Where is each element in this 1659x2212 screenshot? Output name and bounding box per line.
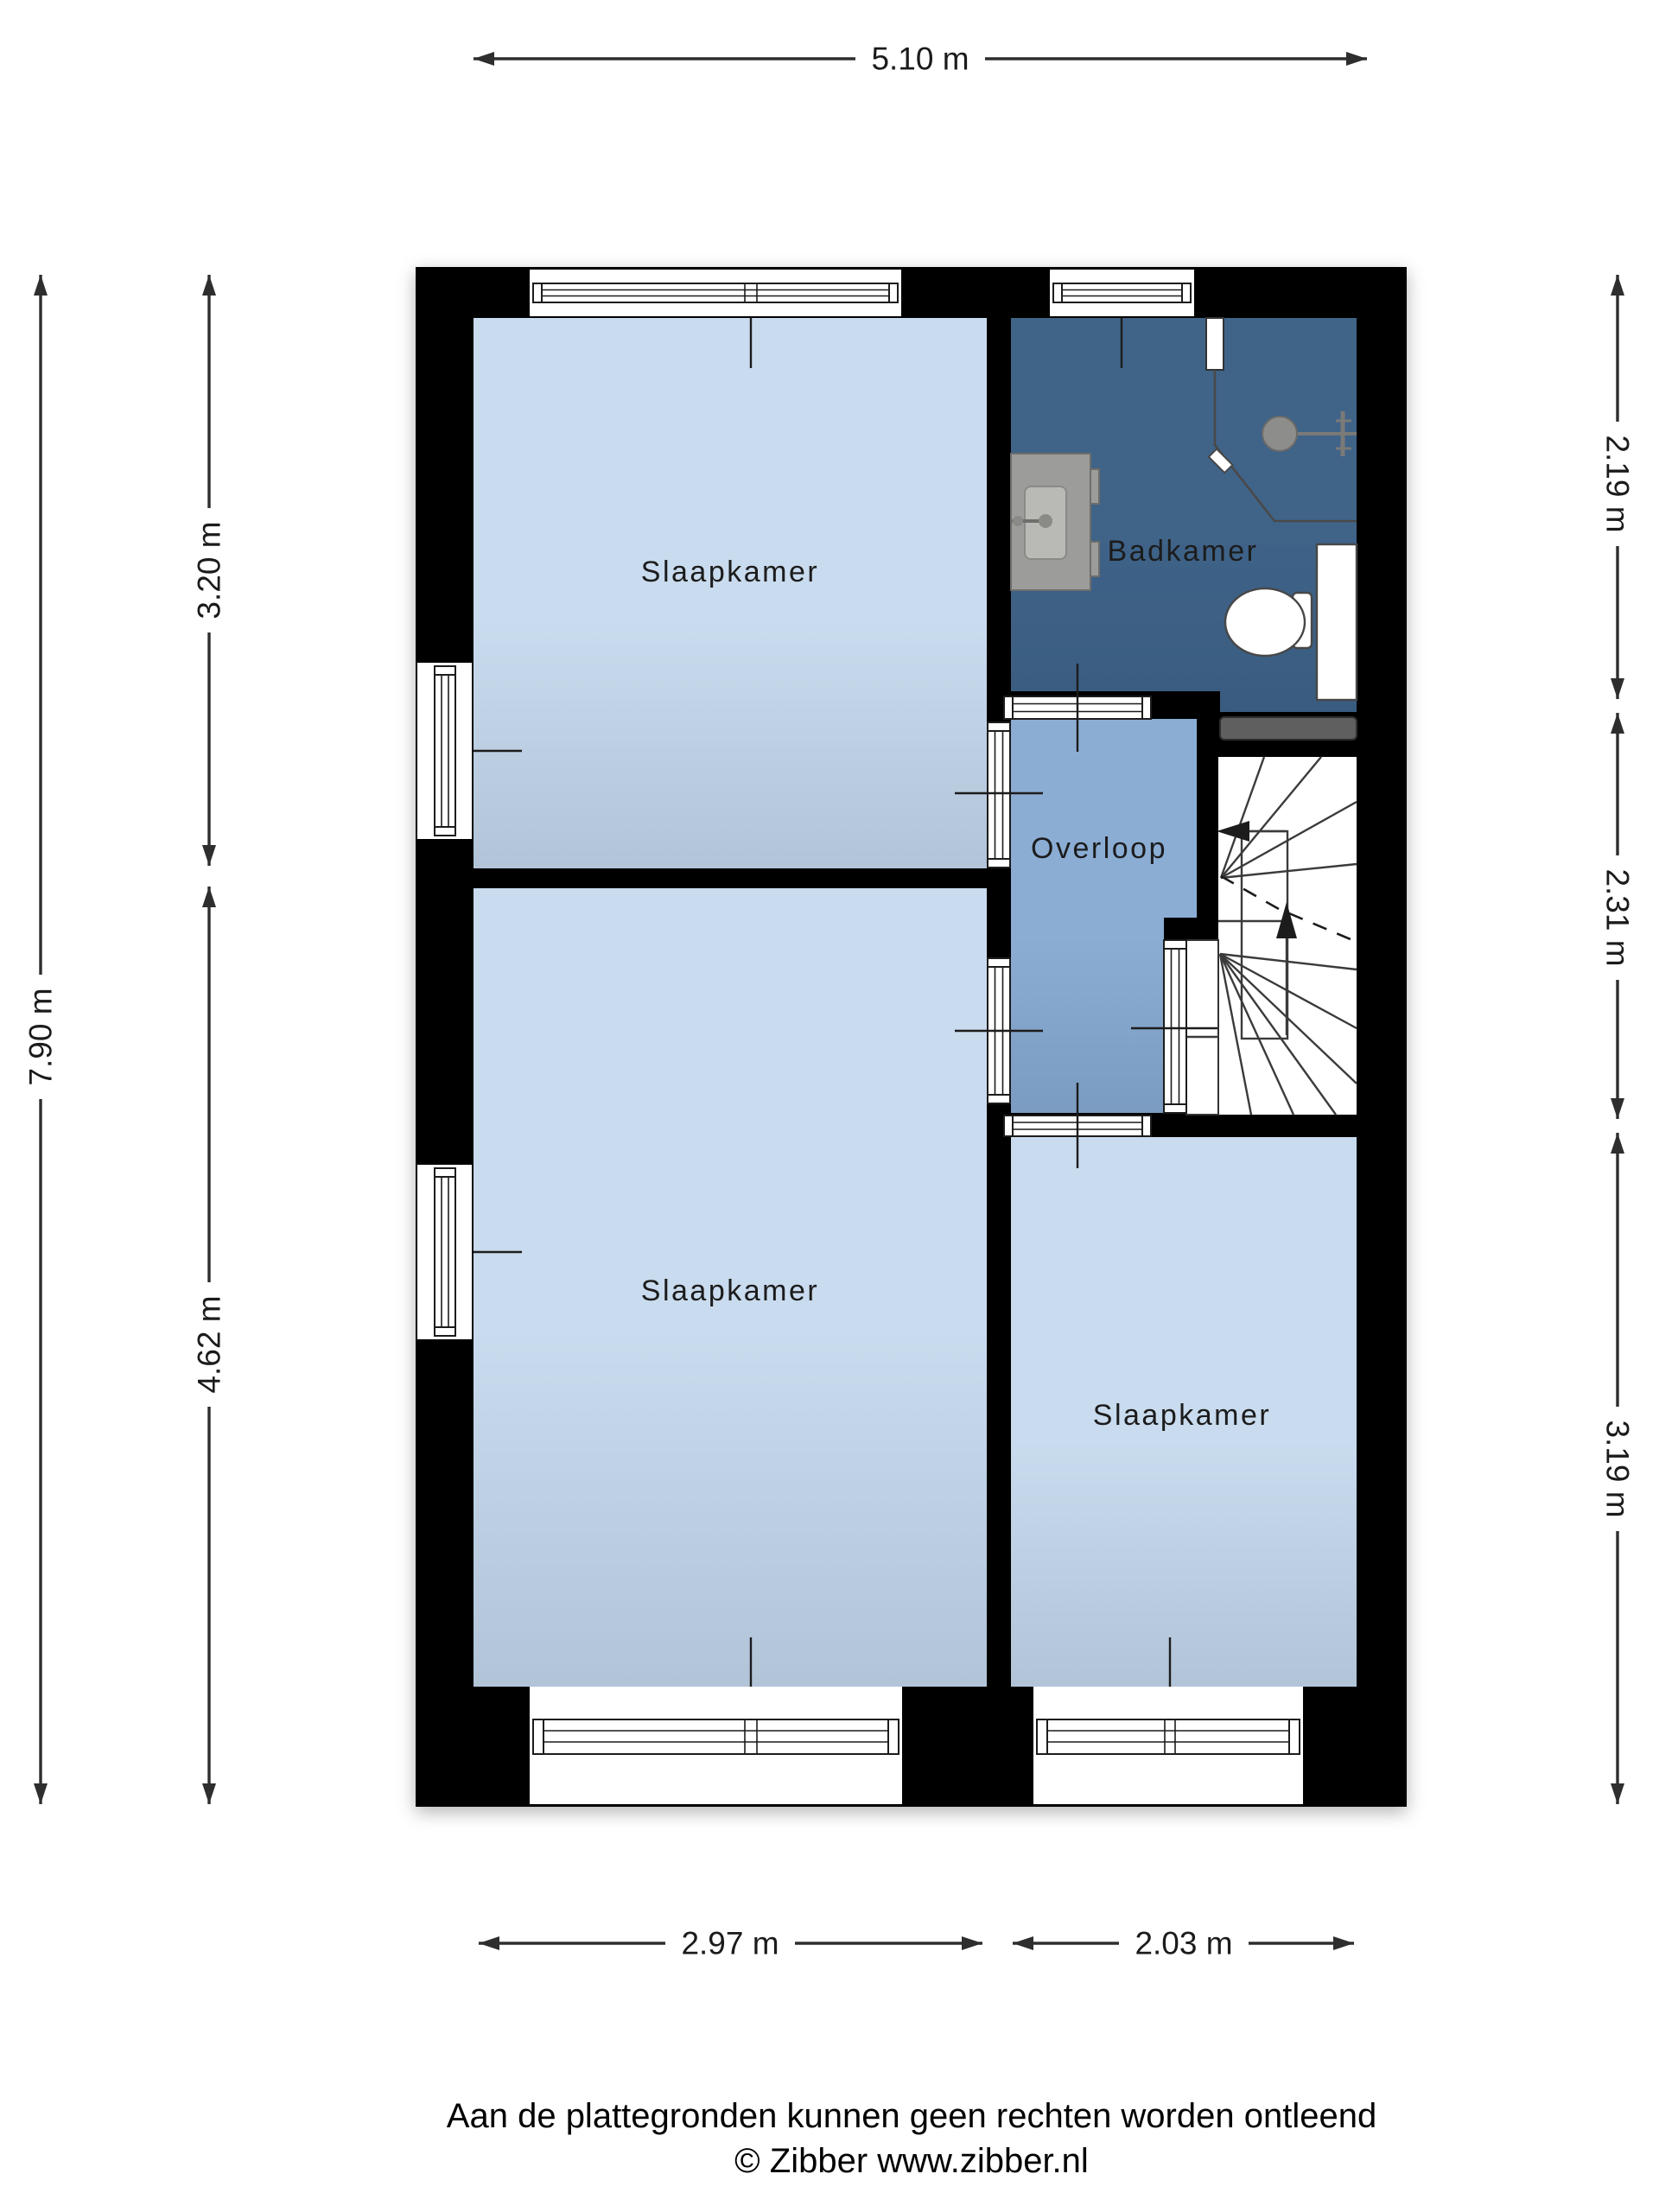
toilet-backing [1317, 544, 1357, 700]
label-bedroom-right: Slaapkamer [1093, 1399, 1271, 1432]
dimension-total-width: 5.10 m [474, 41, 1367, 77]
svg-text:2.03 m: 2.03 m [1135, 1926, 1232, 1961]
label-bathroom: Badkamer [1108, 535, 1259, 568]
label-bedroom-left: Slaapkamer [641, 1274, 819, 1307]
svg-text:2.31 m: 2.31 m [1600, 868, 1636, 966]
dimension-left-upper: 3.20 m [192, 275, 227, 866]
dimension-right-middle: 2.31 m [1600, 713, 1636, 1119]
shower-wall-stub [1206, 318, 1224, 370]
floorplan-canvas: Slaapkamer Badkamer Overloop Slaapkamer … [0, 0, 1659, 2212]
label-bedroom-top: Slaapkamer [641, 556, 819, 588]
svg-text:3.19 m: 3.19 m [1600, 1420, 1636, 1517]
dimension-right-upper: 2.19 m [1600, 275, 1636, 699]
dimension-left-lower: 4.62 m [192, 887, 227, 1804]
bathroom-vanity [1011, 454, 1099, 590]
stair-shelf [1220, 717, 1357, 740]
sink-faucet-icon [1039, 514, 1052, 528]
dimension-bottom-right: 2.03 m [1013, 1926, 1354, 1961]
shower-head-icon [1262, 416, 1297, 451]
footer-disclaimer: Aan de plattegronden kunnen geen rechten… [447, 2097, 1376, 2135]
building: Slaapkamer Badkamer Overloop Slaapkamer … [416, 267, 1407, 1807]
toilet-bowl [1225, 588, 1305, 656]
svg-text:3.20 m: 3.20 m [192, 521, 227, 619]
dimension-right-lower: 3.19 m [1600, 1133, 1636, 1804]
svg-text:2.19 m: 2.19 m [1600, 435, 1636, 532]
label-landing: Overloop [1031, 832, 1167, 865]
svg-text:5.10 m: 5.10 m [871, 41, 969, 77]
floorplan-page: Slaapkamer Badkamer Overloop Slaapkamer … [0, 0, 1659, 2212]
dimension-bottom-left: 2.97 m [479, 1926, 982, 1961]
svg-text:7.90 m: 7.90 m [23, 988, 59, 1085]
footer-copyright: © Zibber www.zibber.nl [734, 2142, 1089, 2180]
dimension-total-height: 7.90 m [23, 275, 59, 1804]
svg-text:2.97 m: 2.97 m [681, 1926, 779, 1961]
svg-text:4.62 m: 4.62 m [192, 1295, 227, 1393]
